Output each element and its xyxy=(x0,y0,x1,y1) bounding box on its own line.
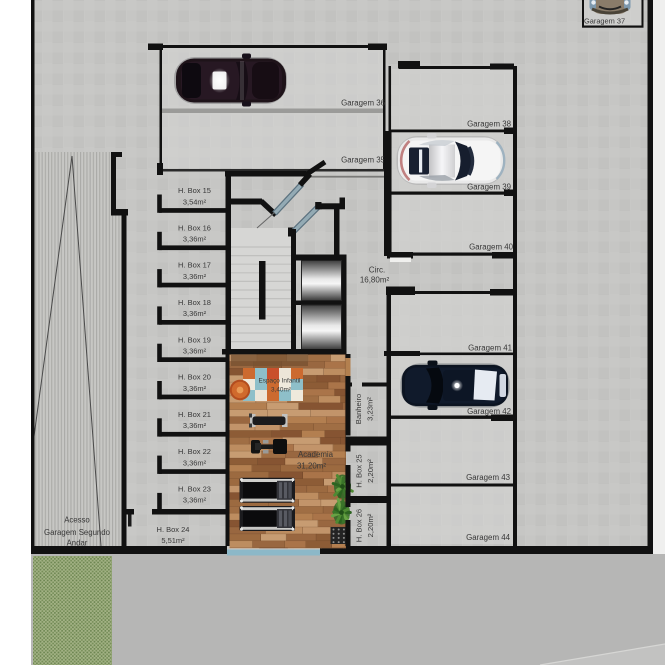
svg-text:Espaço Infantil: Espaço Infantil xyxy=(259,378,301,385)
svg-text:3,36m²: 3,36m² xyxy=(183,235,207,244)
svg-text:H. Box 21: H. Box 21 xyxy=(178,410,211,419)
svg-text:31,20m²: 31,20m² xyxy=(297,462,326,471)
svg-text:Garagem 36: Garagem 36 xyxy=(341,99,385,108)
svg-text:Garagem Segundo: Garagem Segundo xyxy=(44,528,111,537)
svg-text:Garagem 41: Garagem 41 xyxy=(468,344,512,353)
svg-text:H. Box 18: H. Box 18 xyxy=(178,298,211,307)
svg-text:H. Box 24: H. Box 24 xyxy=(157,525,190,534)
svg-text:H. Box 15: H. Box 15 xyxy=(178,186,211,195)
svg-text:H. Box 19: H. Box 19 xyxy=(178,335,211,344)
svg-text:3,36m²: 3,36m² xyxy=(183,458,207,467)
svg-text:2,20m²: 2,20m² xyxy=(366,459,375,483)
svg-text:H. Box 25: H. Box 25 xyxy=(355,454,364,487)
svg-text:Garagem 39: Garagem 39 xyxy=(467,183,511,192)
svg-text:3,36m²: 3,36m² xyxy=(183,421,207,430)
svg-text:3,36m²: 3,36m² xyxy=(183,272,207,281)
svg-text:5,51m²: 5,51m² xyxy=(161,536,185,545)
svg-text:H. Box 20: H. Box 20 xyxy=(178,373,211,382)
svg-text:3,54m²: 3,54m² xyxy=(183,197,207,206)
svg-text:Banheiro: Banheiro xyxy=(354,394,363,424)
svg-text:H. Box 23: H. Box 23 xyxy=(178,485,211,494)
svg-text:3,36m²: 3,36m² xyxy=(183,496,207,505)
svg-text:H. Box 16: H. Box 16 xyxy=(178,223,211,232)
svg-text:Acesso: Acesso xyxy=(64,516,90,525)
svg-text:Circ.: Circ. xyxy=(369,266,385,275)
svg-text:3,36m²: 3,36m² xyxy=(183,347,207,356)
svg-text:3,36m²: 3,36m² xyxy=(183,309,207,318)
svg-text:Garagem 43: Garagem 43 xyxy=(466,473,510,482)
svg-text:Garagem 35: Garagem 35 xyxy=(341,156,385,165)
svg-text:Garagem 44: Garagem 44 xyxy=(466,533,510,542)
svg-text:H. Box 22: H. Box 22 xyxy=(178,447,211,456)
svg-text:Garagem 40: Garagem 40 xyxy=(469,243,513,252)
svg-text:3,36m²: 3,36m² xyxy=(183,384,207,393)
svg-text:H. Box 26: H. Box 26 xyxy=(355,509,364,542)
svg-text:Garagem 42: Garagem 42 xyxy=(467,407,511,416)
svg-text:3,23m²: 3,23m² xyxy=(366,397,375,421)
svg-text:2,20m²: 2,20m² xyxy=(366,513,375,537)
svg-text:3,40m²: 3,40m² xyxy=(271,387,291,394)
svg-text:Garagem 37: Garagem 37 xyxy=(584,17,625,26)
svg-text:Garagem 38: Garagem 38 xyxy=(467,120,511,129)
svg-text:Academia: Academia xyxy=(298,450,334,459)
svg-text:H. Box 17: H. Box 17 xyxy=(178,261,211,270)
svg-text:16,80m²: 16,80m² xyxy=(360,276,390,285)
